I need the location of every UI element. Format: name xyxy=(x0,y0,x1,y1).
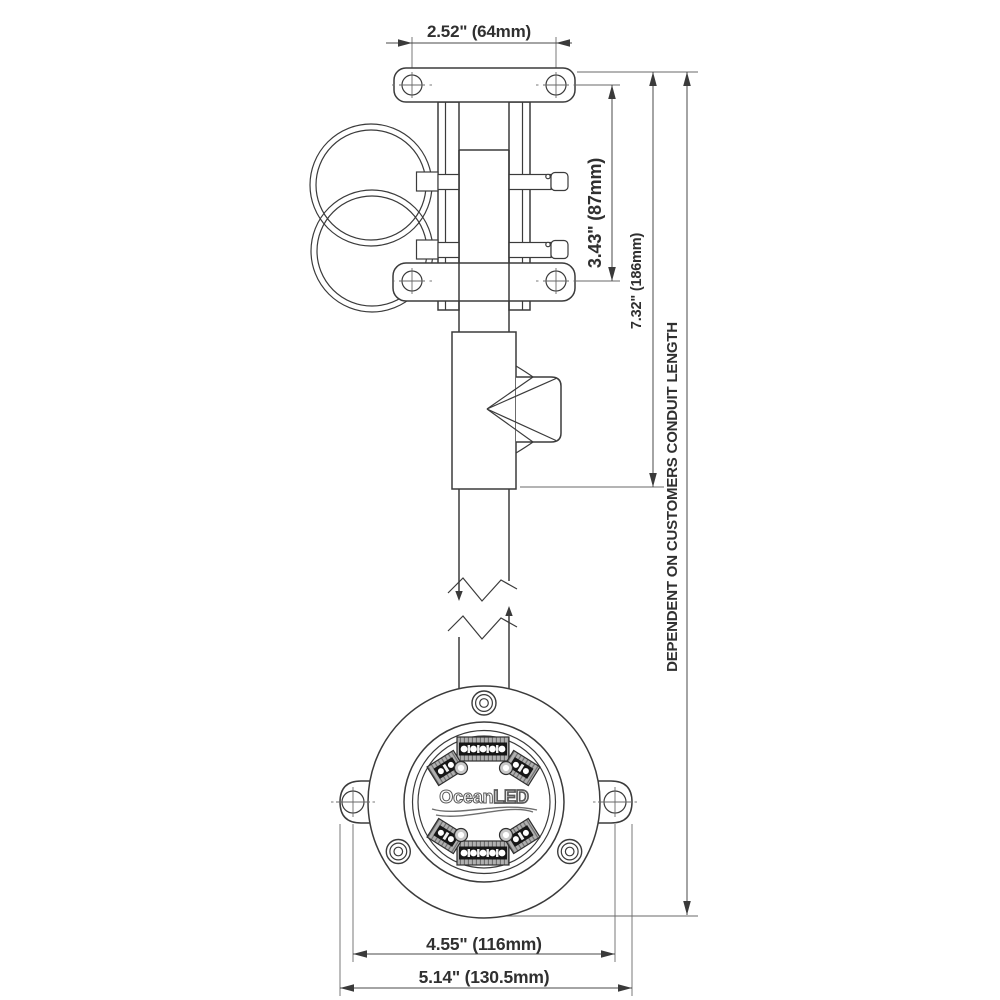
lower-mounting-bracket xyxy=(392,263,576,301)
dimension-label-assembly-height: 7.32" (186mm) xyxy=(629,233,645,330)
dimension-label-flange-width: 5.14" (130.5mm) xyxy=(419,967,550,987)
lens-screw xyxy=(455,762,468,775)
conduit-lower xyxy=(448,606,517,692)
lens-screw xyxy=(500,829,513,842)
lens-screw xyxy=(455,829,468,842)
clamp-bolt-upper xyxy=(417,172,569,191)
led-module-bottom-center xyxy=(457,841,509,865)
logo-ocean: Ocean xyxy=(439,787,493,807)
dimension-label-conduit-note: DEPENDENT ON CUSTOMERS CONDUIT LENGTH xyxy=(664,322,681,672)
svg-text:OceanLED: OceanLED xyxy=(439,787,529,807)
dimension-clamp-spacing: 3.43" (87mm) xyxy=(569,85,620,281)
clamp-ring-upper xyxy=(310,124,432,246)
lens-screw xyxy=(500,762,513,775)
tee-fitting xyxy=(452,332,561,489)
flange-boss-top xyxy=(472,691,496,715)
clamp-bolt-lower xyxy=(417,240,569,259)
top-mounting-bracket xyxy=(392,68,576,102)
led-module-top-center xyxy=(457,737,509,761)
dimension-label-top-width: 2.52" (64mm) xyxy=(427,22,531,41)
logo-led: LED xyxy=(493,787,529,807)
flange-boss-bottom-right xyxy=(558,840,582,864)
oceanled-installation-diagram: 2.52" (64mm) 3.43" (87mm) 7.32" (186mm) … xyxy=(0,0,1000,1000)
mounting-pole xyxy=(459,150,509,332)
break-symbol-lower xyxy=(448,616,517,639)
conduit-upper xyxy=(448,489,517,601)
light-fixture: OceanLED xyxy=(331,686,637,918)
dimension-label-clamp-spacing: 3.43" (87mm) xyxy=(585,158,605,268)
dimension-label-bolt-spacing: 4.55" (116mm) xyxy=(426,934,542,954)
technical-drawing-page: 2.52" (64mm) 3.43" (87mm) 7.32" (186mm) … xyxy=(0,0,1000,1000)
flange-boss-bottom-left xyxy=(386,840,410,864)
